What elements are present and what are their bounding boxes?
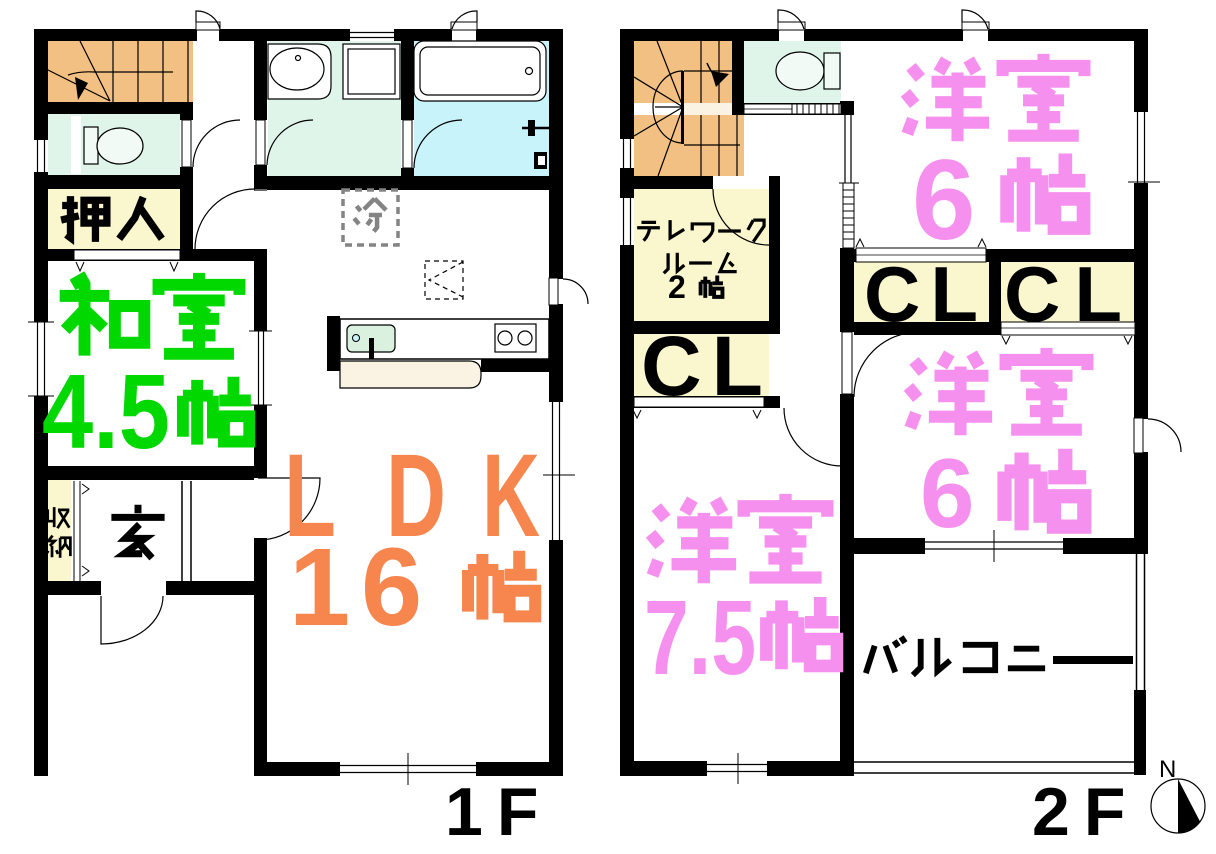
svg-text:4.5: 4.5 (42, 353, 170, 471)
svg-text:1F: 1F (445, 774, 552, 850)
svg-text:7.5: 7.5 (644, 579, 756, 697)
svg-text:6: 6 (361, 526, 422, 649)
svg-text:1: 1 (289, 526, 350, 649)
svg-text:CL: CL (641, 319, 773, 413)
svg-text:2F: 2F (1032, 774, 1139, 850)
svg-text:2: 2 (668, 269, 686, 305)
svg-text:6: 6 (920, 438, 975, 548)
svg-text:CL: CL (1004, 250, 1136, 338)
svg-text:K: K (482, 430, 540, 562)
svg-text:6: 6 (912, 137, 975, 264)
